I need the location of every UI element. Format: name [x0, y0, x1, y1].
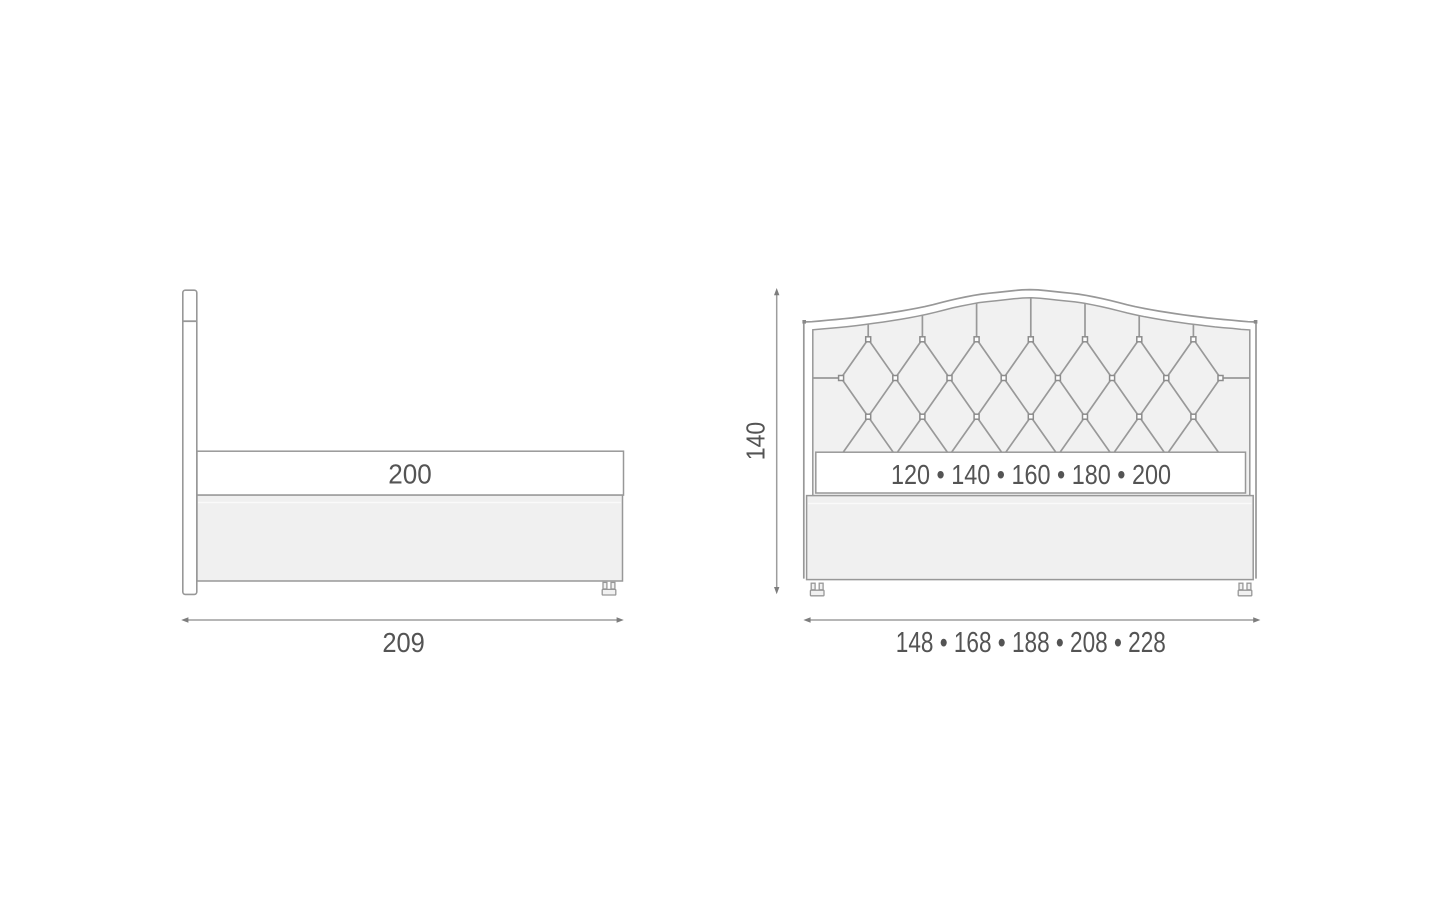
svg-text:140: 140: [741, 422, 771, 461]
svg-text:120 • 140 • 160 • 180 • 200: 120 • 140 • 160 • 180 • 200: [891, 459, 1171, 490]
svg-text:148 • 168 • 188 • 208 • 228: 148 • 168 • 188 • 208 • 228: [896, 627, 1166, 659]
svg-text:200: 200: [388, 459, 432, 490]
svg-text:209: 209: [382, 627, 425, 658]
